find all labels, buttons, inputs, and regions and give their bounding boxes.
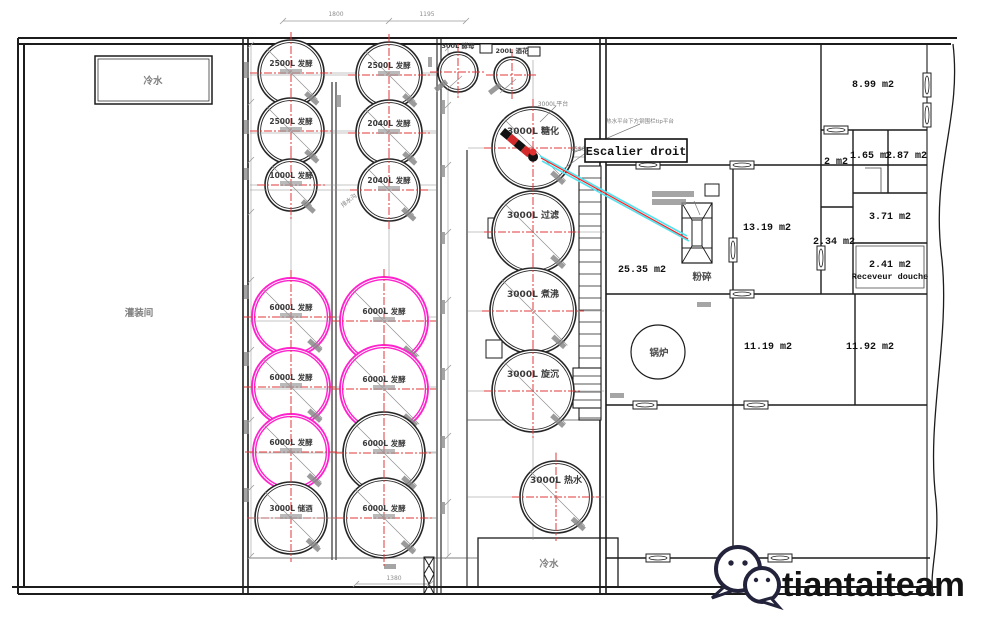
room-label: 11.92 m2 [846, 342, 894, 353]
equipment-box [528, 47, 540, 56]
window-symbol [817, 246, 825, 270]
illegible-dim-smudge [280, 448, 302, 453]
rail-note-callout: 热水平台下方钢围栏tip平台 [606, 117, 674, 125]
room-label: 锅炉 [649, 347, 669, 359]
room-label: 2.34 m2 [813, 237, 855, 248]
tank-label: 3000L 煮沸 [507, 288, 559, 300]
tank-label: 3000L 储酒 [269, 503, 313, 513]
illegible-text-smudge [244, 120, 249, 134]
illegible-text-smudge [652, 199, 686, 205]
tank-label: 3000L 过滤 [507, 209, 559, 221]
illegible-dim-smudge [280, 313, 302, 318]
platform-callout: 3000L平台 [538, 100, 569, 108]
room-label: 冷水 [143, 75, 163, 87]
illegible-dim-smudge [378, 186, 400, 191]
tank: 3000L 热水 [468, 453, 604, 541]
illegible-text-smudge [244, 420, 249, 434]
window-symbol [923, 103, 931, 127]
tank-label: 2500L 发酵 [269, 58, 313, 68]
illegible-dim-smudge [373, 514, 395, 519]
illegible-text-smudge [440, 165, 445, 177]
dimension-label: 1380 [386, 575, 401, 582]
equipment-box [705, 184, 719, 196]
illegible-dim-smudge [280, 69, 302, 74]
room-label: 11.19 m2 [744, 342, 792, 353]
illegible-text-smudge [244, 168, 249, 180]
dimension-label: 1195 [419, 11, 434, 18]
room-label: 灌装间 [125, 307, 154, 319]
tank-label: 200L 酒花 [496, 46, 529, 55]
room-label: 2.41 m2 [869, 260, 911, 271]
tank-label: 6000L 发酵 [269, 302, 313, 312]
room-label: 2 m2 [824, 157, 848, 168]
room-label: 1.87 m2 [885, 151, 927, 162]
tank-label: 6000L 发酵 [362, 306, 406, 316]
illegible-text-smudge [440, 300, 445, 314]
window-symbol [923, 73, 931, 97]
room-label: 粉碎 [692, 271, 712, 283]
escalier-droit-text: Escalier droit [586, 145, 687, 159]
illegible-text-smudge [440, 232, 445, 244]
window-symbol [730, 161, 754, 169]
room-label: 3.71 m2 [869, 212, 911, 223]
illegible-text-smudge [440, 100, 445, 114]
illegible-text-smudge [610, 393, 624, 398]
tank-label: 2500L 发酵 [367, 60, 411, 70]
tank-label: 6000L 发酵 [362, 438, 406, 448]
room-label: Receveur douche [852, 272, 929, 282]
illegible-dim-smudge [378, 129, 400, 134]
room-label: 8.99 m2 [852, 80, 894, 91]
illegible-text-smudge [440, 436, 445, 448]
tank-label: 2040L 发酵 [367, 175, 411, 185]
illegible-dim-smudge [280, 181, 302, 186]
tank-label: 6000L 发酵 [362, 503, 406, 513]
tank-label: 6000L 发酵 [269, 437, 313, 447]
tank: 300L 酵母 [430, 41, 486, 100]
tank-label: 2500L 发酵 [269, 116, 313, 126]
illegible-dim-smudge [280, 383, 302, 388]
tank-label: 2040L 发酵 [367, 118, 411, 128]
window-symbol [729, 238, 737, 262]
illegible-text-smudge [440, 368, 445, 380]
floor-plan-canvas: 2500L 发酵2500L 发酵1000L 发酵2500L 发酵2040L 发酵… [0, 0, 1000, 621]
illegible-dim-smudge [373, 449, 395, 454]
illegible-text-smudge [336, 95, 341, 107]
hub-dot [530, 149, 537, 156]
illegible-text-smudge [652, 191, 694, 197]
room-label: 13.19 m2 [743, 223, 791, 234]
illegible-text-smudge [244, 352, 249, 366]
equipment-box [480, 44, 492, 53]
room-label: 25.35 m2 [618, 265, 666, 276]
dimension-label: 1800 [328, 11, 343, 18]
illegible-dim-smudge [280, 127, 302, 132]
illegible-text-smudge [697, 302, 711, 307]
window-symbol [646, 554, 670, 562]
room-label: 冷水 [539, 558, 559, 570]
tank-label: 3000L 旋沉 [507, 368, 559, 380]
illegible-dim-smudge [373, 385, 395, 390]
tank-label: 6000L 发酵 [269, 372, 313, 382]
illegible-text-smudge [244, 285, 249, 299]
floor-plan-svg: 2500L 发酵2500L 发酵1000L 发酵2500L 发酵2040L 发酵… [0, 0, 1000, 621]
illegible-text-smudge [244, 488, 249, 502]
window-symbol [744, 401, 768, 409]
mill-machine [682, 203, 712, 263]
tank-label: 1000L 发酵 [269, 170, 313, 180]
dimension-label: 1580 [570, 146, 585, 153]
illegible-dim-smudge [373, 317, 395, 322]
tank-label: 300L 酵母 [442, 41, 475, 50]
tank-label: 6000L 发酵 [362, 374, 406, 384]
staircase [573, 368, 601, 408]
window-symbol [633, 401, 657, 409]
escalier-droit-label: Escalier droit [585, 139, 687, 162]
watermark-text: tiantaiteam [782, 566, 965, 604]
illegible-text-smudge [244, 62, 249, 78]
illegible-text-smudge [384, 564, 396, 569]
tank-label: 3000L 热水 [530, 474, 583, 486]
window-symbol [730, 290, 754, 298]
window-symbol [768, 554, 792, 562]
illegible-dim-smudge [378, 71, 400, 76]
window-symbol [824, 126, 848, 134]
illegible-text-smudge [428, 57, 432, 67]
drain-callout: 排水沟 [339, 192, 358, 209]
equipment-box [486, 340, 502, 358]
illegible-text-smudge [440, 502, 445, 514]
walls [12, 21, 957, 594]
tank-label: 3000L 糖化 [507, 125, 559, 137]
